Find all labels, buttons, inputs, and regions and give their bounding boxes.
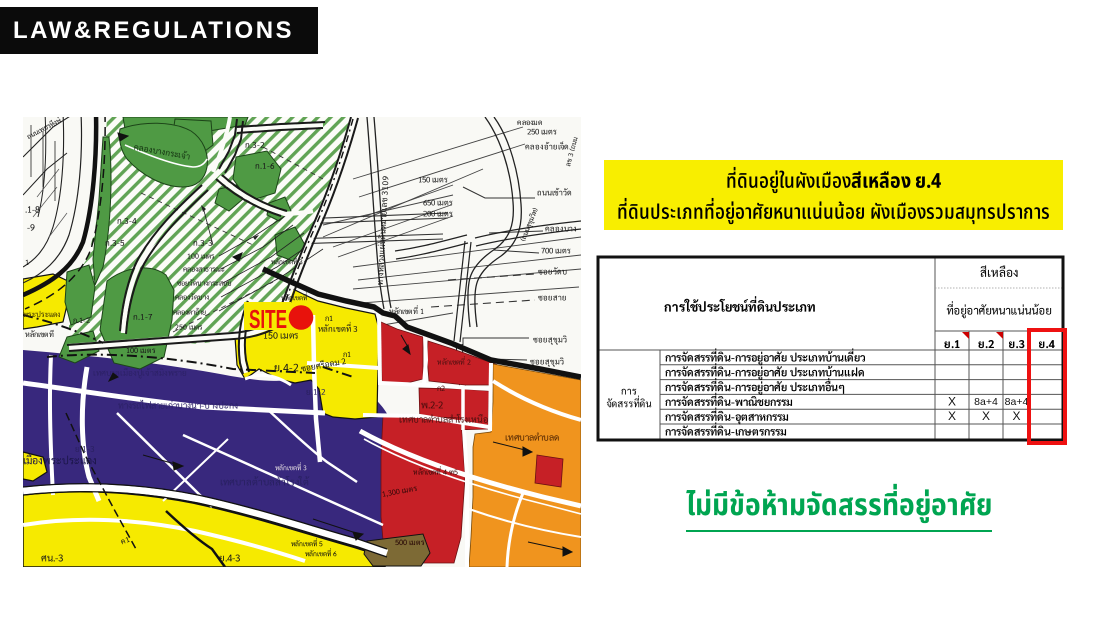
svg-text:X: X: [1012, 409, 1020, 423]
svg-text:SITE: SITE: [249, 304, 287, 334]
svg-text:8a+4: 8a+4: [1005, 396, 1029, 408]
svg-text:X: X: [948, 394, 956, 408]
svg-text:X: X: [948, 409, 956, 423]
svg-text:X: X: [982, 409, 990, 423]
svg-text:8a+4: 8a+4: [974, 396, 998, 408]
